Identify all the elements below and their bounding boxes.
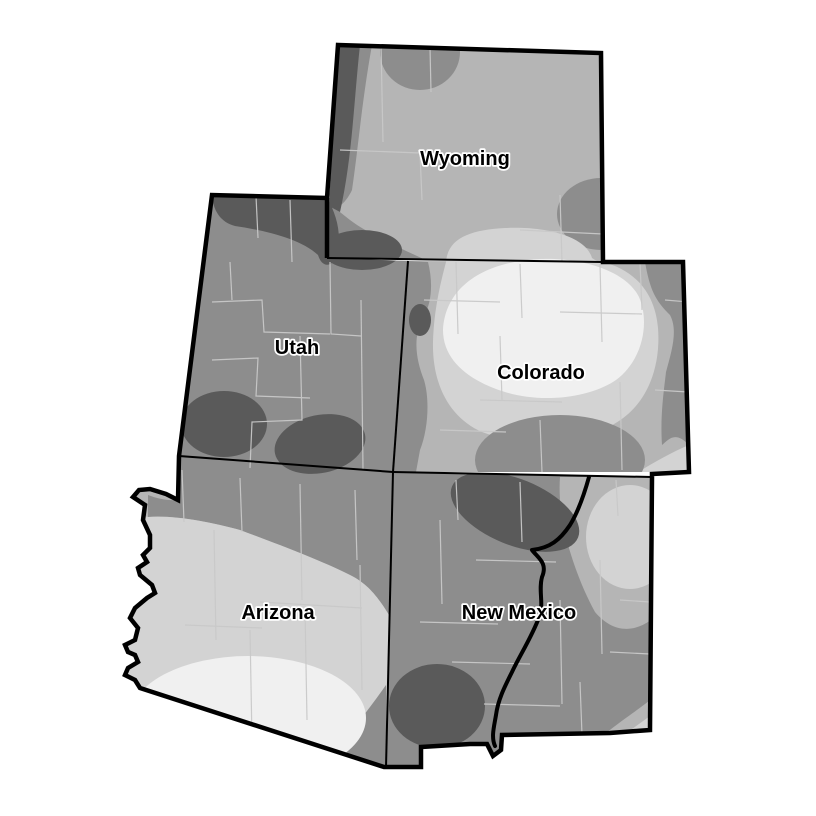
shade-colorado-west-blob (409, 304, 431, 336)
state-label-wyoming: Wyoming (420, 148, 510, 170)
shade-new-mexico-ne-light (586, 485, 674, 589)
state-label-colorado: Colorado (497, 362, 585, 384)
state-label-arizona: Arizona (241, 602, 315, 624)
shade-utah-south-blob-left (181, 391, 267, 457)
shade-new-mexico-south-blob (389, 664, 485, 748)
shade-wyoming-top-blob (380, 14, 460, 90)
state-label-new-mexico: New Mexico (462, 602, 576, 624)
map-canvas: Wyoming Utah Colorado Arizona New Mexico (0, 0, 816, 816)
map-container: Wyoming Utah Colorado Arizona New Mexico (0, 0, 816, 816)
state-label-utah: Utah (275, 337, 319, 359)
shade-border-blob-wy-ut (322, 230, 402, 270)
shade-arizona-lightest-core (130, 656, 366, 780)
